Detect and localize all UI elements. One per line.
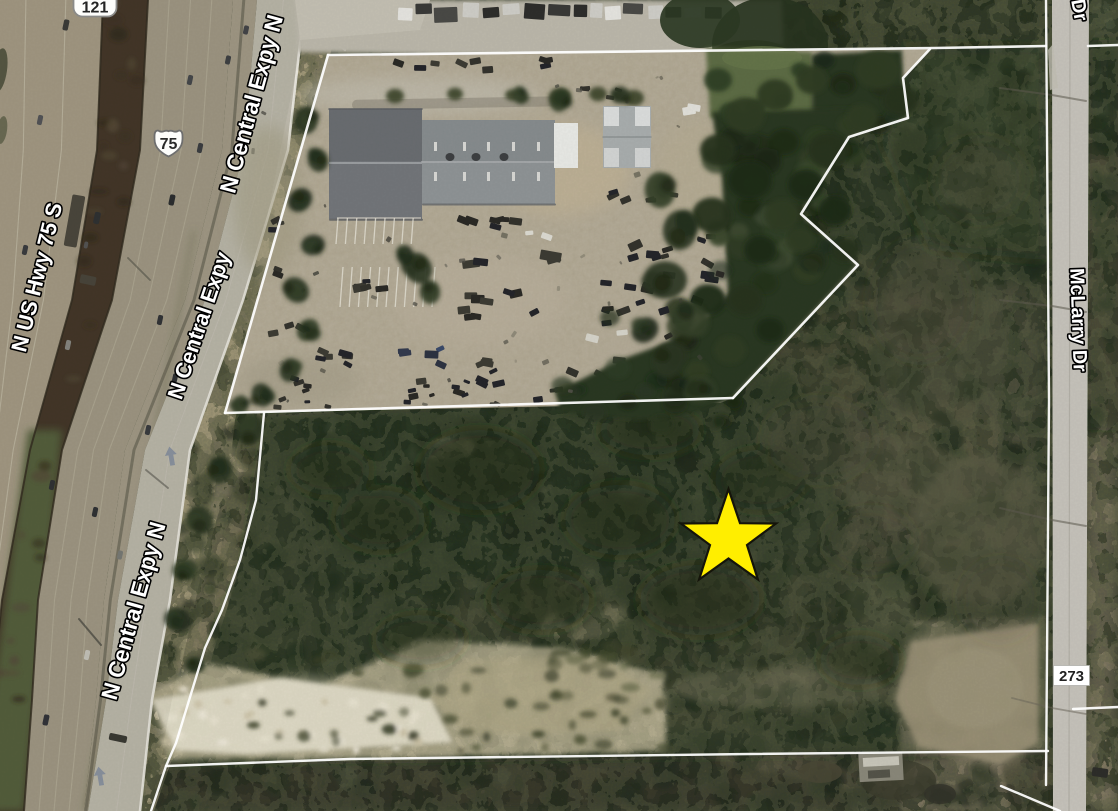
svg-text:273: 273 [1059,668,1084,685]
svg-text:121: 121 [82,0,109,17]
svg-text:McLarry Dr: McLarry Dr [1065,268,1091,373]
svg-text:75: 75 [160,136,178,153]
